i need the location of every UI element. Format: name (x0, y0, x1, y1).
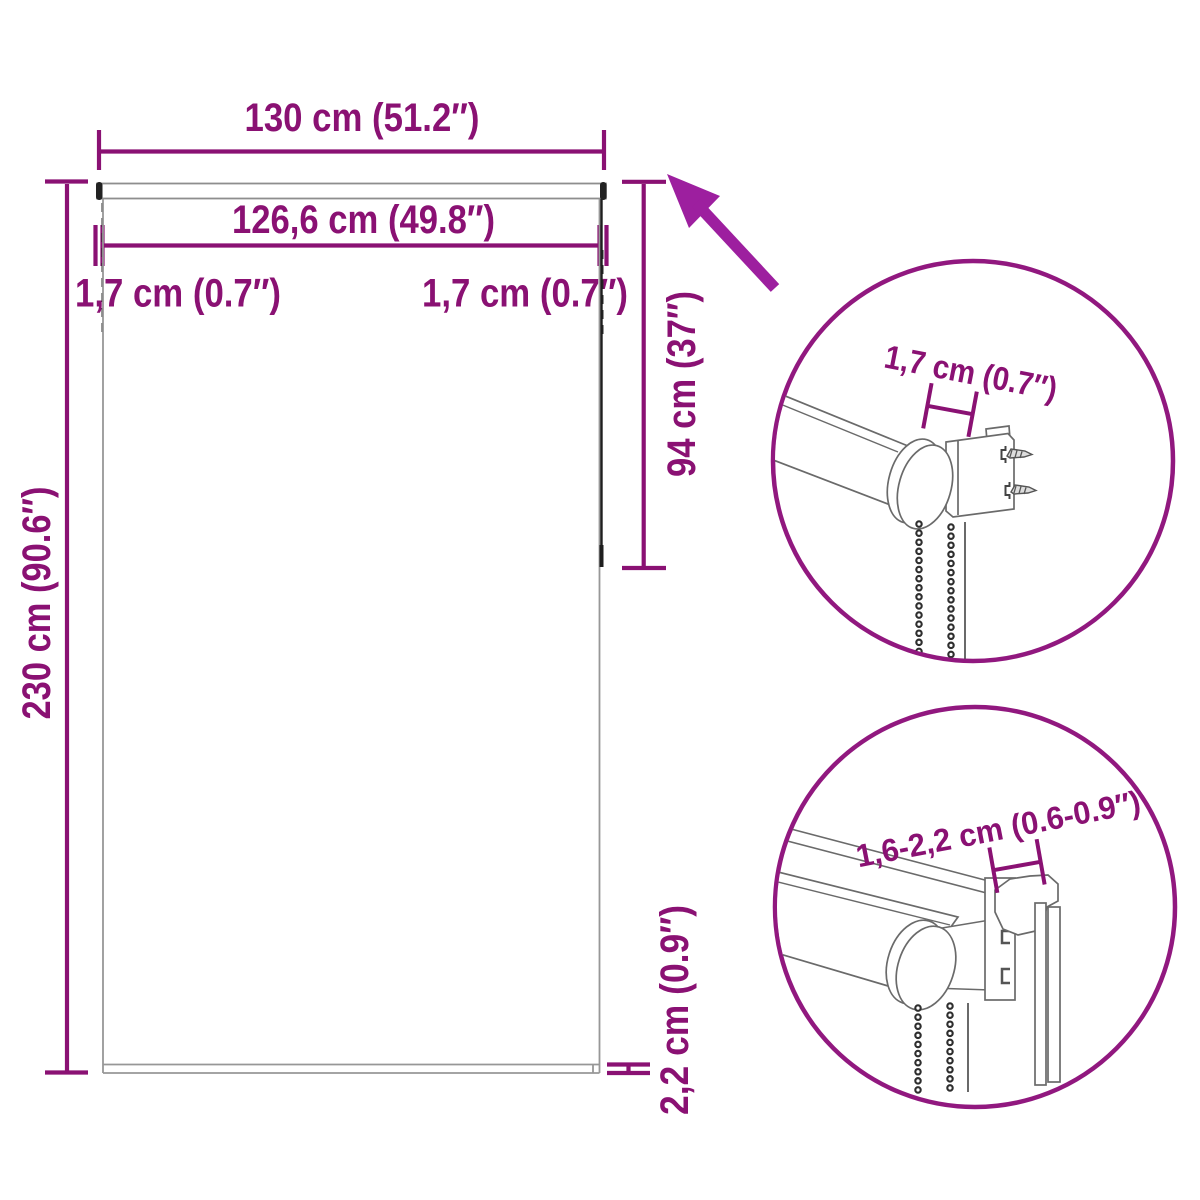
svg-text:126,6 cm (49.8″): 126,6 cm (49.8″) (232, 198, 495, 242)
svg-text:1,7 cm (0.7″): 1,7 cm (0.7″) (75, 272, 281, 316)
svg-text:1,7 cm (0.7″): 1,7 cm (0.7″) (422, 272, 628, 316)
svg-text:2,2 cm (0.9″): 2,2 cm (0.9″) (653, 905, 697, 1115)
svg-text:130 cm (51.2″): 130 cm (51.2″) (245, 96, 480, 140)
svg-text:230 cm (90.6″): 230 cm (90.6″) (15, 487, 59, 720)
svg-text:94 cm (37″): 94 cm (37″) (660, 291, 704, 477)
